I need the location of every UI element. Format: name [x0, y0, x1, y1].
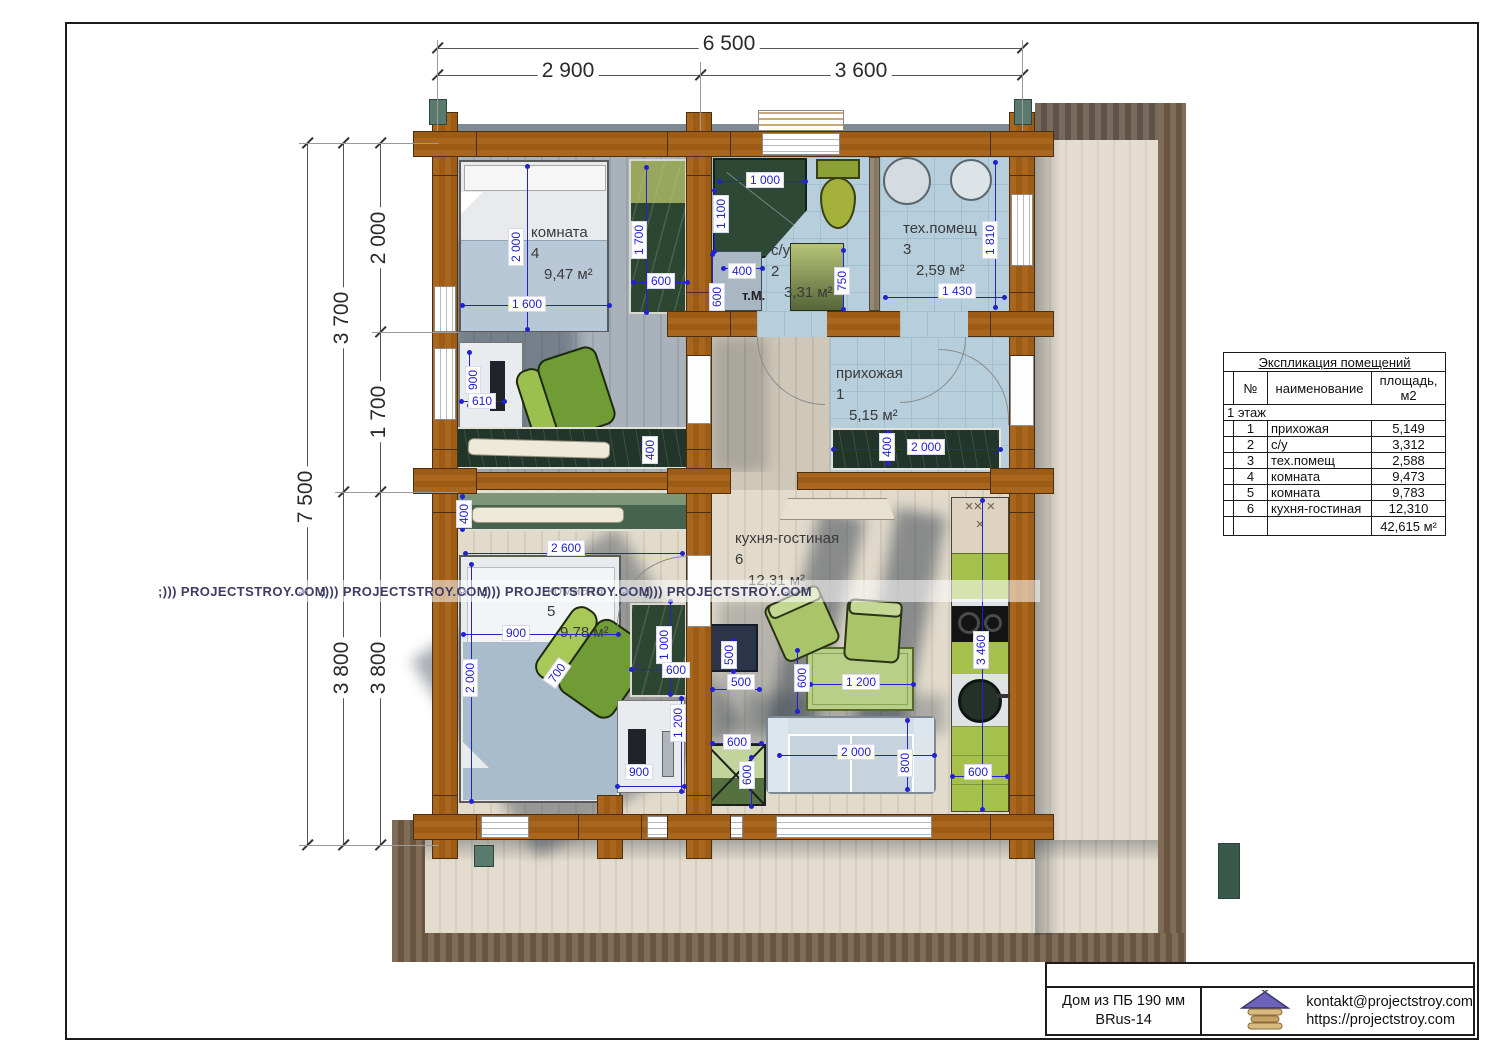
dimension-value-blue: 600 [723, 734, 751, 750]
extension-line [700, 62, 701, 131]
dimension-value-blue: 600 [709, 283, 725, 311]
shadow [712, 337, 767, 472]
legend-row: 2с/у3,312 [1224, 437, 1446, 453]
dimension-value-blue: 400 [728, 263, 756, 279]
dimension-value-blue: 3 460 [973, 631, 989, 669]
company-logo [1238, 990, 1292, 1032]
extension-line [437, 40, 438, 131]
log-post [990, 311, 1054, 337]
dimension-value-blue: 900 [502, 625, 530, 641]
room-area: 9,78 м² [560, 622, 609, 643]
log-post [667, 814, 731, 840]
legend-row-area: 9,783 [1372, 485, 1446, 501]
title-block: Дом из ПБ 190 мм BRus-14 kontakt@project… [1045, 986, 1475, 1036]
post-cap [474, 845, 494, 867]
legend-row-area: 5,149 [1372, 421, 1446, 437]
dimension-value: 3 600 [831, 59, 892, 83]
legend-row-area: 3,312 [1372, 437, 1446, 453]
dimension-value-blue: 2 000 [508, 228, 524, 266]
legend-row-num: 2 [1234, 437, 1268, 453]
door-opening [757, 311, 827, 337]
bed-pillow-area [464, 165, 606, 191]
log-post [578, 814, 642, 840]
wardrobe-top [631, 161, 685, 203]
post-cap [1014, 99, 1032, 125]
log-post [413, 814, 477, 840]
project-name: Дом из ПБ 190 мм [1047, 992, 1200, 1011]
decor-board [468, 438, 610, 459]
room-legend-table: Экспликация помещений № наименование пло… [1223, 352, 1446, 536]
dimension-value-blue: 500 [721, 641, 737, 669]
legend-row: 5комната9,783 [1224, 485, 1446, 501]
wall-interior-2b [797, 472, 1009, 490]
dimension-value: 7 500 [294, 467, 318, 528]
room-name: с/у [771, 240, 833, 261]
post-cap [429, 99, 447, 125]
window-bottom-3 [776, 816, 932, 838]
contact-email: kontakt@projectstroy.com [1306, 993, 1473, 1011]
dimension-value-blue: 600 [647, 273, 675, 289]
project-code: BRus-14 [1047, 1011, 1200, 1030]
toilet [812, 159, 866, 235]
sink-tap [996, 694, 1010, 698]
decor-board [472, 507, 624, 523]
room-label: с/у23,31 м² [771, 240, 833, 303]
dimension-line [343, 143, 344, 845]
legend-row: 3тех.помещ2,588 [1224, 453, 1446, 469]
legend-row-name: тех.помещ [1268, 453, 1372, 469]
legend-row: 4комната9,473 [1224, 469, 1446, 485]
dimension-value-blue: 1 430 [938, 283, 976, 299]
dimension-value-blue: 600 [662, 662, 690, 678]
dimension-value-blue: 1 200 [842, 674, 880, 690]
room-number: 6 [735, 549, 839, 570]
legend-row-num: 6 [1234, 501, 1268, 517]
dimension-value: 1 700 [367, 382, 391, 443]
room-name: кухня-гостиная [735, 528, 839, 549]
toilet-bowl [820, 177, 856, 229]
extension-line [1022, 40, 1023, 131]
title-block-project: Дом из ПБ 190 мм BRus-14 [1047, 988, 1202, 1034]
dimension-value-blue: 2 000 [907, 439, 945, 455]
room-label: прихожая15,15 м² [836, 363, 903, 426]
terrace-border-bottom [392, 933, 1186, 962]
extension-line [335, 492, 458, 493]
legend-row-area: 9,473 [1372, 469, 1446, 485]
dimension-value-blue: 600 [739, 761, 755, 789]
legend-row-num: 4 [1234, 469, 1268, 485]
entrance-steps [758, 110, 844, 131]
room-number: 4 [531, 243, 593, 264]
dimension-value-blue: 400 [879, 433, 895, 461]
counter-pantry: ×× ×× [952, 498, 1008, 553]
dimension-value-blue: 750 [834, 267, 850, 295]
dimension-value: 3 800 [367, 638, 391, 699]
room-number: 1 [836, 384, 903, 405]
legend-row-name: прихожая [1268, 421, 1372, 437]
room-label: тех.помещ32,59 м² [903, 218, 977, 281]
legend-title: Экспликация помещений [1224, 353, 1446, 372]
legend-total: 42,615 м² [1372, 517, 1446, 536]
log-post [413, 131, 477, 157]
legend-row-name: с/у [1268, 437, 1372, 453]
log-post [667, 131, 731, 157]
shelf-top-band [458, 493, 686, 505]
dimension-value-blue: 400 [642, 436, 658, 464]
dimension-value-blue: 2 000 [462, 659, 478, 697]
sink-round [958, 679, 1002, 723]
dimension-value-blue: 2 600 [547, 540, 585, 556]
wall-interior-2a [458, 472, 686, 490]
room-area: 3,31 м² [784, 282, 833, 303]
room-number: 5 [547, 601, 609, 622]
dimension-value-blue: 1 700 [631, 221, 647, 259]
room-name: комната [531, 222, 593, 243]
door-room4 [687, 348, 711, 424]
dimension-value: 3 800 [330, 638, 354, 699]
boiler-small [950, 159, 992, 201]
dimension-value: 2 000 [367, 208, 391, 269]
boiler-large [883, 157, 931, 205]
room-number: 3 [903, 239, 977, 260]
dimension-value: 6 500 [699, 32, 760, 56]
page: { "plan": { "watermark_text": ";))) PROJ… [0, 0, 1500, 1061]
title-block-contacts: kontakt@projectstroy.com https://project… [1202, 988, 1473, 1034]
shelf-console [456, 491, 688, 531]
legend-row: 1прихожая5,149 [1224, 421, 1446, 437]
sofa-seat-split [850, 734, 852, 792]
legend-table: Экспликация помещений № наименование пло… [1223, 352, 1446, 536]
dimension-value-blue: 1 000 [746, 172, 784, 188]
log-post [990, 131, 1054, 157]
bed-fold [463, 742, 489, 768]
extension-line [372, 332, 458, 333]
entrance-door [1010, 346, 1034, 426]
legend-row-num: 1 [1234, 421, 1268, 437]
dimension-value-blue: 1 810 [982, 221, 998, 259]
room-name: тех.помещ [903, 218, 977, 239]
legend-col-blank [1224, 372, 1234, 405]
extension-line [299, 143, 439, 144]
window-left-1 [434, 286, 456, 332]
dimension-value-blue: 500 [727, 674, 755, 690]
room-area: 5,15 м² [849, 405, 903, 426]
dining-chair [843, 598, 903, 664]
washer-label: т.М. [742, 288, 765, 303]
legend-floor-row: 1 этаж [1224, 405, 1446, 421]
log-post [667, 468, 731, 494]
dimension-value-blue: 1 600 [508, 296, 546, 312]
log-post [667, 311, 731, 337]
title-block-strip [1045, 962, 1475, 988]
dimension-value-blue: 800 [897, 749, 913, 777]
legend-col-num: № [1234, 372, 1268, 405]
wall-exterior-top [432, 131, 1035, 157]
legend-row-name: комната [1268, 485, 1372, 501]
log-post [990, 468, 1054, 494]
bed-fold [461, 192, 483, 214]
dimension-value-blue: 400 [456, 500, 472, 528]
window-bottom-1 [481, 816, 529, 838]
log-post [413, 468, 477, 494]
dimension-value-blue: 900 [625, 764, 653, 780]
wall-partition-thin [869, 157, 880, 311]
legend-row: 6кухня-гостиная12,310 [1224, 501, 1446, 517]
dimension-value-blue: 2 000 [837, 744, 875, 760]
dimension-value-blue: 600 [794, 664, 810, 692]
legend-row-name: кухня-гостиная [1268, 501, 1372, 517]
extension-line [299, 845, 439, 846]
contact-site: https://projectstroy.com [1306, 1011, 1473, 1029]
legend-row-num: 3 [1234, 453, 1268, 469]
room-area: 2,59 м² [916, 260, 977, 281]
dimension-value: 2 900 [538, 59, 599, 83]
terrace-border-right [1158, 103, 1186, 962]
window-top [762, 133, 840, 155]
legend-row-area: 2,588 [1372, 453, 1446, 469]
room-label: комната49,47 м² [531, 222, 593, 285]
room-area: 9,47 м² [544, 264, 593, 285]
legend-row-num: 5 [1234, 485, 1268, 501]
burner [984, 614, 1002, 632]
legend-col-area: площадь,м2 [1372, 372, 1446, 405]
door-opening [900, 311, 968, 337]
log-post [990, 814, 1054, 840]
range-hood [780, 498, 895, 520]
window-right-tech [1011, 194, 1033, 266]
room-number: 2 [771, 261, 833, 282]
post-cap [1218, 843, 1240, 899]
legend-row-area: 12,310 [1372, 501, 1446, 517]
dimension-value-blue: 900 [465, 366, 481, 394]
dimension-value: 3 700 [330, 288, 354, 349]
toilet-tank [816, 159, 860, 179]
dimension-line [437, 75, 1022, 76]
dimension-value-blue: 1 000 [656, 626, 672, 664]
dimension-line-blue [617, 786, 685, 787]
dimension-value-blue: 600 [964, 764, 992, 780]
dimension-value-blue: 610 [468, 393, 496, 409]
legend-row-name: комната [1268, 469, 1372, 485]
folding-table [706, 744, 766, 806]
legend-col-name: наименование [1268, 372, 1372, 405]
dimension-value-blue: 1 200 [670, 704, 686, 742]
dimension-value-blue: 1 100 [713, 195, 729, 233]
window-left-2 [434, 348, 456, 420]
room-name: прихожая [836, 363, 903, 384]
